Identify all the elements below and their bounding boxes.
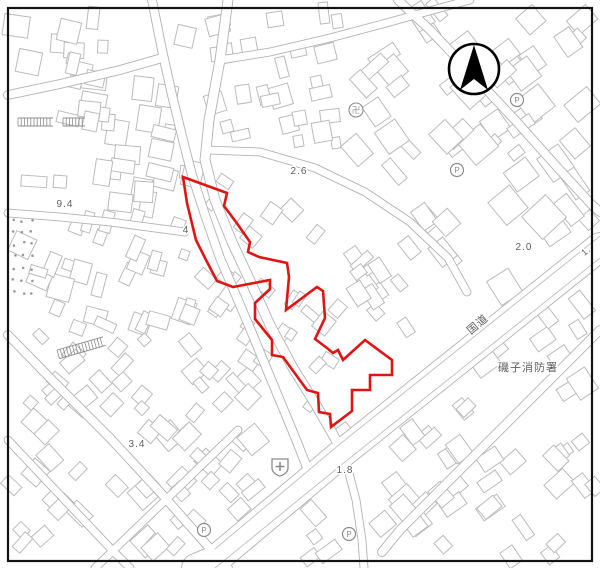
slope-hatch	[18, 118, 53, 126]
map-label: 1.8	[337, 465, 354, 476]
map-page: PPPP卍 9.442.62.01.83.41.国道磯子消防署	[0, 0, 600, 568]
vegetation-dot	[23, 292, 26, 295]
hatch-tick	[57, 350, 59, 359]
building-outline	[146, 163, 174, 182]
building-outline	[390, 274, 408, 292]
vegetation-dot	[30, 268, 33, 271]
building-outline	[260, 202, 283, 225]
building-outline	[100, 393, 124, 417]
parking-letter: P	[514, 96, 519, 105]
building-outline	[398, 236, 421, 261]
parking-icon: P	[511, 94, 524, 107]
building-outline	[49, 299, 65, 317]
building-outline	[500, 545, 523, 568]
hatch-tick	[91, 340, 93, 349]
building-outline	[311, 120, 333, 143]
building-outline	[146, 311, 170, 330]
building-outline	[174, 24, 197, 48]
map-label: 4	[183, 225, 190, 236]
building-outline	[235, 84, 252, 104]
building-outline	[488, 185, 528, 225]
building-outline	[15, 48, 42, 75]
parking-letter: P	[454, 166, 459, 175]
building-outline	[500, 449, 527, 475]
vegetation-dot	[31, 254, 34, 257]
building-outline	[105, 475, 128, 498]
north-arrow-icon	[449, 44, 499, 94]
vegetation-dot	[13, 290, 16, 293]
building-outline	[219, 449, 242, 473]
building-outline	[112, 372, 132, 392]
vegetation-dot	[11, 278, 14, 281]
building-outline	[12, 532, 33, 553]
building-outline	[178, 333, 201, 357]
building-outline	[98, 40, 109, 53]
hatch-tick	[97, 339, 99, 348]
building-outline	[91, 272, 107, 297]
building-outline	[341, 133, 374, 166]
map-label: 3.4	[129, 439, 146, 450]
vegetation-dot	[22, 254, 25, 257]
building-outline	[132, 76, 154, 102]
building-outline	[318, 2, 330, 24]
building-outline	[172, 422, 201, 451]
vegetation-dot	[12, 268, 15, 271]
building-outline	[293, 135, 304, 148]
building-outline	[512, 514, 535, 540]
vegetation-dot	[12, 230, 15, 233]
building-outline	[178, 249, 190, 261]
map-label: 2.0	[516, 242, 533, 253]
vegetation-dot	[13, 244, 16, 247]
vegetation-dot	[12, 218, 15, 221]
vegetation-dot	[29, 230, 32, 233]
vegetation-dot	[20, 279, 23, 282]
building-outline	[82, 111, 100, 132]
building-outline	[216, 173, 234, 189]
building-outline	[530, 327, 557, 352]
building-outline	[89, 370, 112, 393]
building-outline	[21, 175, 47, 188]
building-outline	[306, 224, 325, 244]
building-outline	[201, 471, 219, 489]
building-outline	[2, 13, 30, 38]
hatch-tick	[100, 338, 102, 347]
vegetation-dot	[20, 220, 23, 223]
building-outline	[314, 42, 338, 64]
vegetation-dot	[21, 231, 24, 234]
building-outline	[31, 525, 53, 547]
temple-glyph: 卍	[352, 105, 361, 115]
parking-letter: P	[201, 526, 206, 535]
hatch-tick	[88, 341, 90, 350]
building-outline	[1, 475, 22, 496]
building-outline	[56, 111, 80, 127]
building-outline	[213, 392, 234, 413]
building-outline	[93, 159, 113, 187]
vegetation-dot	[22, 267, 25, 270]
hatch-tick	[85, 342, 87, 351]
building-outline	[569, 319, 587, 339]
hospital-icon	[272, 459, 288, 476]
building-outline	[186, 403, 205, 423]
vegetation-dot	[30, 242, 33, 245]
building-outline	[331, 14, 343, 29]
hatch-tick	[94, 339, 96, 348]
temple-icon: 卍	[349, 103, 363, 117]
building-outline	[219, 483, 239, 503]
parking-icon: P	[451, 164, 464, 177]
building-outline	[382, 158, 408, 185]
building-outline	[432, 208, 460, 236]
building-outline	[56, 18, 81, 44]
cadastral-map: PPPP卍 9.442.62.01.83.41.国道磯子消防署	[0, 0, 600, 568]
vegetation-dot	[30, 292, 33, 295]
road-fill-topleft-road-lower	[8, 213, 185, 232]
building-outline	[33, 328, 49, 344]
building-outline	[434, 535, 452, 554]
building-outline	[292, 110, 307, 126]
building-outline	[68, 462, 87, 481]
map-label: 2.6	[291, 166, 308, 177]
building-outline	[362, 97, 391, 127]
building-outline	[266, 11, 284, 28]
building-outline	[571, 433, 589, 451]
building-outline	[134, 181, 154, 203]
vegetation-dot	[31, 280, 34, 283]
building-outline	[397, 317, 416, 338]
map-label: 9.4	[57, 199, 74, 210]
building-outline	[564, 87, 600, 123]
building-outline	[315, 539, 342, 563]
building-outline	[328, 299, 348, 319]
parking-icon: P	[198, 524, 211, 537]
building-outline	[108, 192, 134, 213]
building-outline	[477, 470, 502, 493]
vegetation-dot	[14, 254, 17, 257]
building-outline	[148, 138, 174, 161]
parking-letter: P	[346, 530, 351, 539]
building-outline	[53, 175, 67, 188]
map-label: 磯子消防署	[498, 360, 558, 374]
building-outline	[23, 395, 38, 410]
building-outline	[166, 537, 185, 556]
parking-icon: P	[343, 528, 356, 541]
building-outline	[544, 468, 575, 499]
building-outline	[138, 333, 152, 347]
building-outline	[86, 6, 100, 29]
building-outline	[220, 119, 234, 134]
building-outline	[134, 401, 149, 416]
building-outline	[195, 267, 217, 289]
building-outline	[275, 56, 290, 79]
building-outline	[307, 529, 323, 545]
vegetation-dot	[31, 219, 34, 222]
vegetation-dot	[23, 241, 26, 244]
